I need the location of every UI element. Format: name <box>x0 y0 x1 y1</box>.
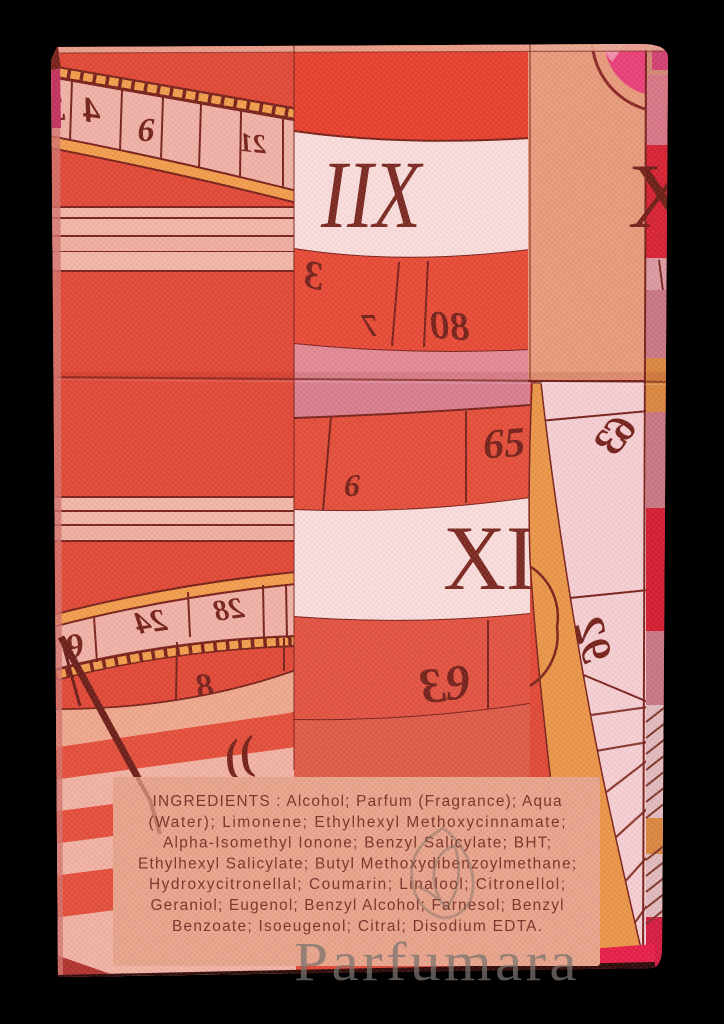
svg-text:Parfumara: Parfumara <box>294 931 580 992</box>
